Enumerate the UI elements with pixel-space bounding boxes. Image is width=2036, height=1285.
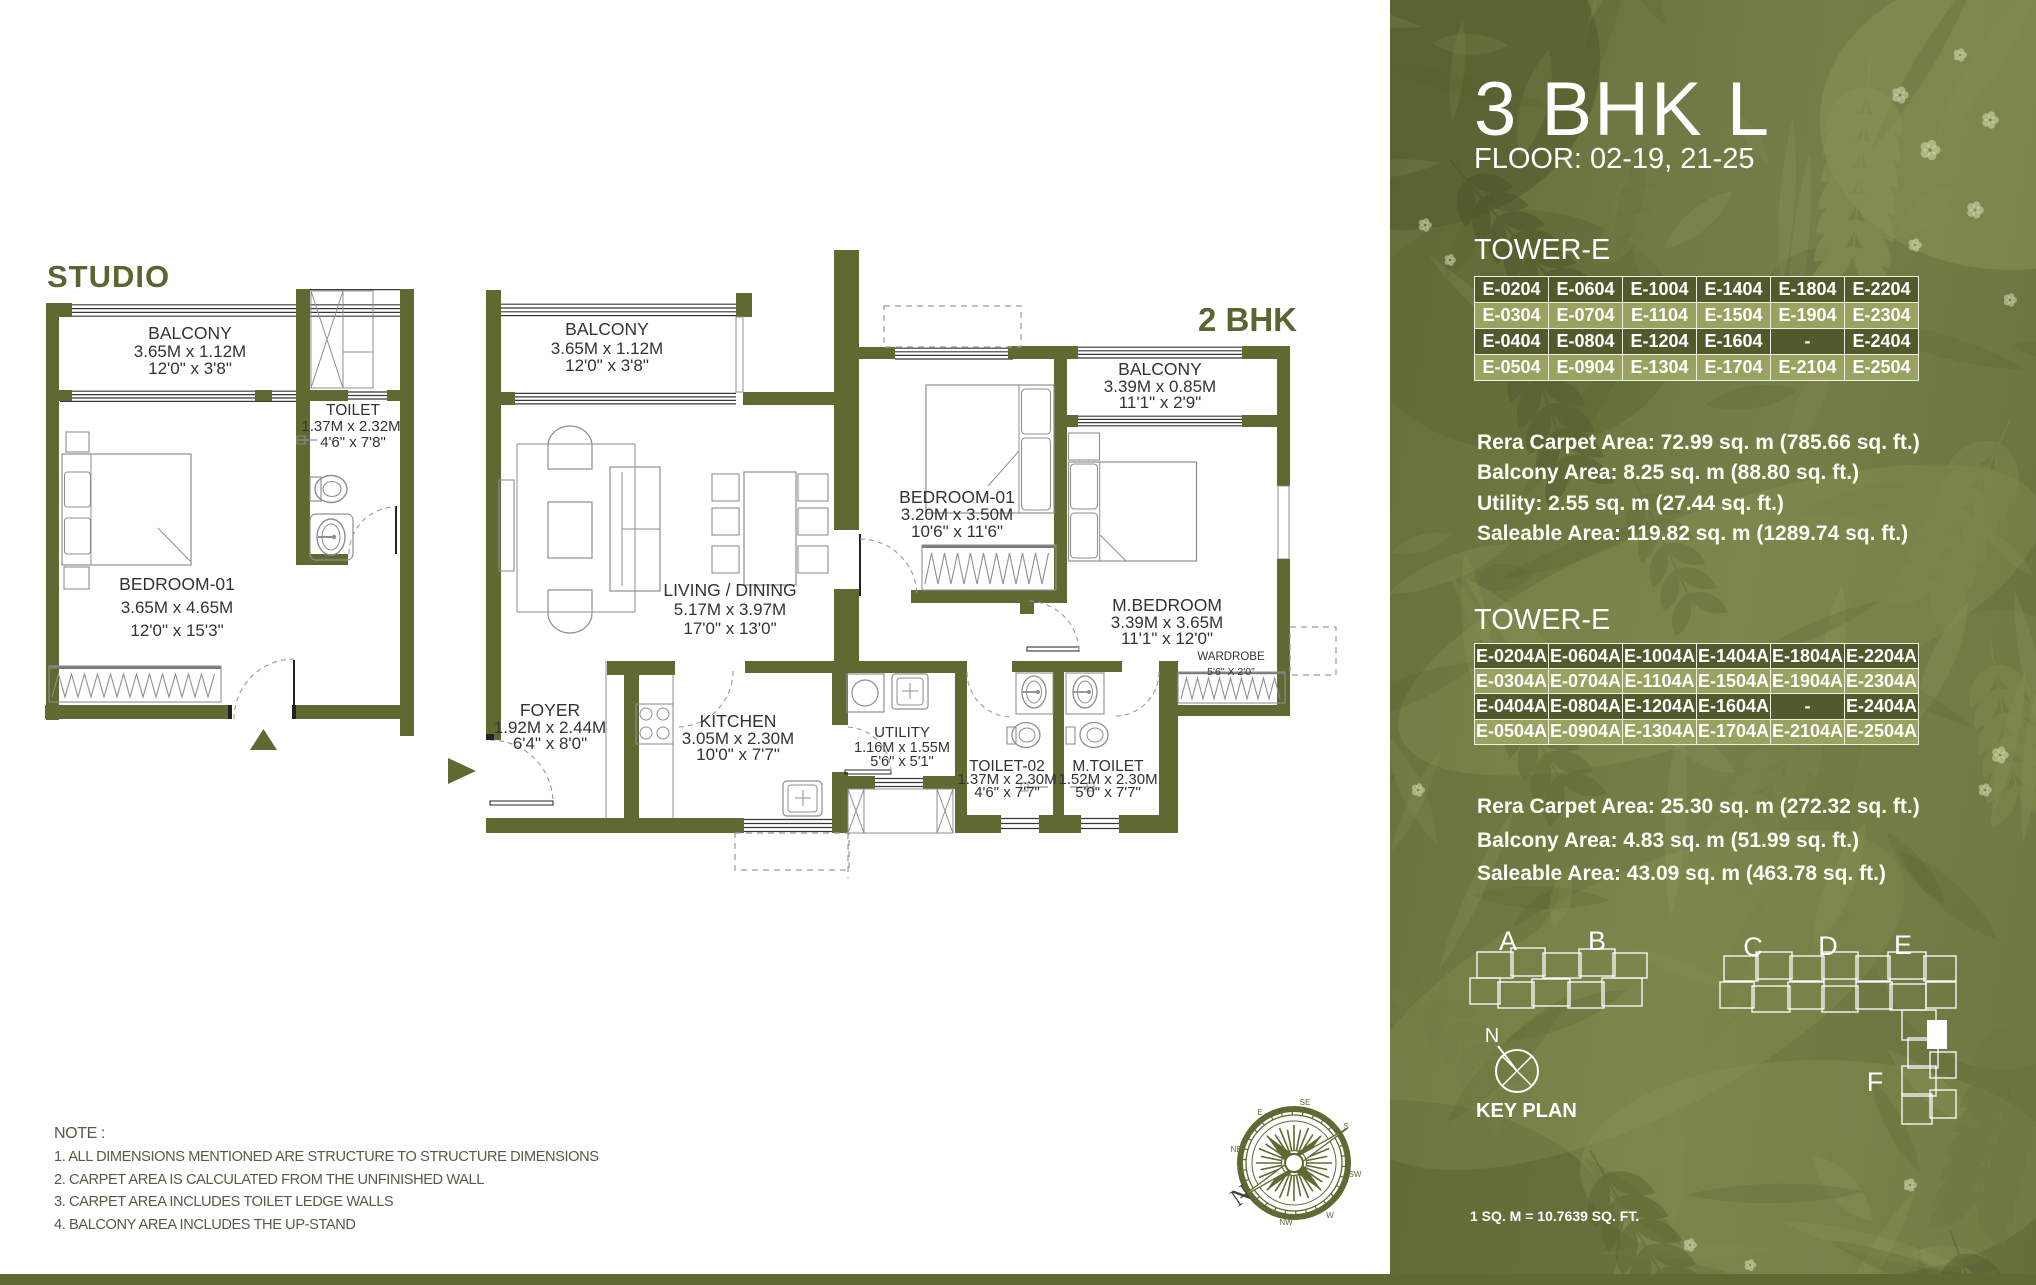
svg-text:2. CARPET AREA IS CALCULATED F: 2. CARPET AREA IS CALCULATED FROM THE UN… — [54, 1172, 484, 1188]
svg-text:2 BHK: 2 BHK — [1198, 301, 1297, 338]
svg-text:NOTE :: NOTE : — [54, 1125, 105, 1142]
svg-text:4'6" x 7'7": 4'6" x 7'7" — [974, 784, 1040, 801]
svg-text:BALCONY: BALCONY — [1118, 359, 1202, 379]
svg-text:12'0" x 3'8": 12'0" x 3'8" — [565, 356, 649, 375]
svg-text:1. ALL DIMENSIONS MENTIONED AR: 1. ALL DIMENSIONS MENTIONED ARE STRUCTUR… — [54, 1149, 599, 1165]
svg-text:1.37M x 2.32M: 1.37M x 2.32M — [301, 418, 400, 435]
svg-text:F: F — [1867, 1067, 1884, 1097]
svg-text:BEDROOM-01: BEDROOM-01 — [119, 574, 235, 594]
svg-text:TOILET: TOILET — [326, 402, 381, 419]
svg-text:NW: NW — [1279, 1218, 1293, 1227]
svg-text:B: B — [1588, 926, 1606, 956]
svg-text:5'6" x 5'1": 5'6" x 5'1" — [870, 754, 933, 770]
svg-text:11'1" x 2'9": 11'1" x 2'9" — [1119, 393, 1202, 412]
svg-text:SW: SW — [1349, 1170, 1362, 1179]
svg-text:4. BALCONY AREA INCLUDES THE U: 4. BALCONY AREA INCLUDES THE UP-STAND — [54, 1217, 356, 1233]
svg-text:SE: SE — [1300, 1098, 1311, 1107]
svg-text:E: E — [1894, 930, 1912, 960]
svg-text:12'0" x 3'8": 12'0" x 3'8" — [148, 359, 232, 378]
svg-text:W: W — [1326, 1211, 1334, 1220]
svg-text:4'6" x 7'8": 4'6" x 7'8" — [320, 434, 386, 451]
svg-text:D: D — [1818, 931, 1838, 961]
svg-text:17'0" x 13'0": 17'0" x 13'0" — [683, 619, 776, 638]
svg-text:LIVING / DINING: LIVING / DINING — [663, 580, 796, 600]
svg-text:BALCONY: BALCONY — [565, 319, 649, 339]
svg-text:KITCHEN: KITCHEN — [700, 711, 777, 731]
svg-text:WARDROBE: WARDROBE — [1197, 651, 1265, 663]
svg-text:NE: NE — [1230, 1145, 1241, 1154]
svg-text:S: S — [1343, 1122, 1348, 1131]
svg-text:M.BEDROOM: M.BEDROOM — [1112, 595, 1222, 615]
svg-text:A: A — [1499, 926, 1517, 956]
svg-text:FOYER: FOYER — [520, 700, 580, 720]
svg-text:BALCONY: BALCONY — [148, 323, 232, 343]
svg-text:BEDROOM-01: BEDROOM-01 — [899, 487, 1015, 507]
svg-text:5'6" X 2'0": 5'6" X 2'0" — [1207, 666, 1255, 678]
svg-text:10'6" x 11'6": 10'6" x 11'6" — [911, 522, 1003, 541]
svg-text:N: N — [1485, 1025, 1499, 1047]
svg-text:UTILITY: UTILITY — [874, 724, 930, 741]
svg-text:3.65M x 4.65M: 3.65M x 4.65M — [121, 598, 233, 617]
svg-text:C: C — [1743, 932, 1763, 962]
svg-text:3. CARPET AREA INCLUDES TOILET: 3. CARPET AREA INCLUDES TOILET LEDGE WAL… — [54, 1194, 394, 1210]
svg-text:E: E — [1257, 1108, 1262, 1117]
svg-text:6'4" x 8'0": 6'4" x 8'0" — [513, 734, 587, 753]
svg-text:10'0" x 7'7": 10'0" x 7'7" — [696, 745, 780, 764]
svg-text:11'1" x 12'0": 11'1" x 12'0" — [1121, 629, 1213, 648]
svg-text:5.17M x 3.97M: 5.17M x 3.97M — [674, 600, 786, 619]
svg-text:5'0" x 7'7": 5'0" x 7'7" — [1075, 784, 1141, 801]
svg-text:STUDIO: STUDIO — [47, 259, 170, 294]
svg-text:12'0" x 15'3": 12'0" x 15'3" — [130, 621, 223, 640]
